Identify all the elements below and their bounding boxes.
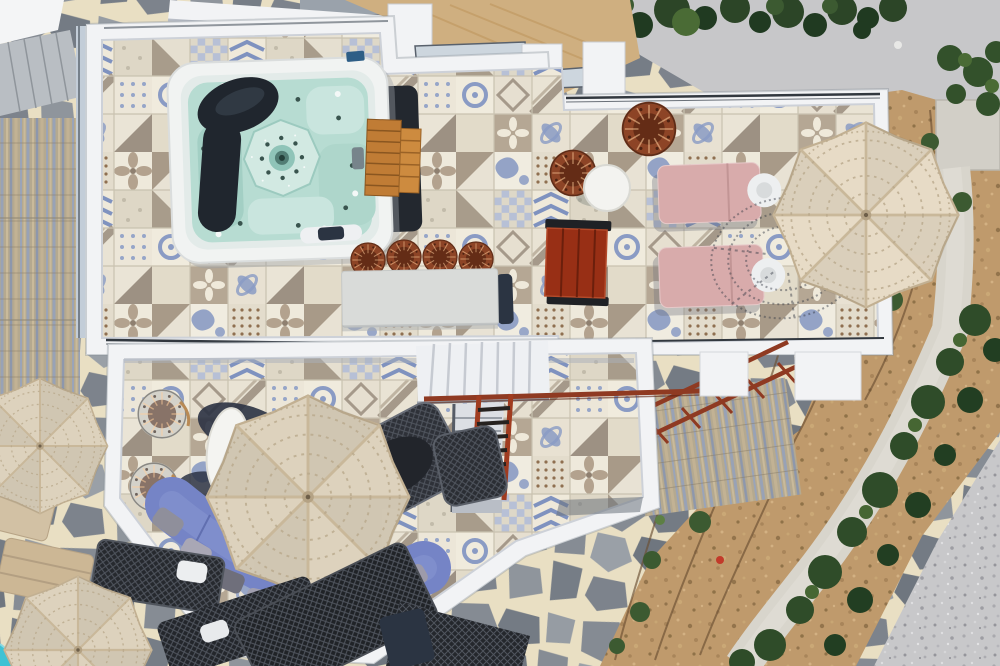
aerial-photo-stage	[0, 0, 1000, 666]
bench-cushion	[318, 226, 345, 241]
daybed-canopy	[431, 424, 509, 508]
control-panel	[352, 147, 365, 169]
wooden-step	[365, 119, 422, 197]
bar-table	[543, 219, 612, 306]
blue-accessory	[346, 51, 365, 63]
red-flower	[716, 556, 724, 564]
wall-cast-shadow	[124, 358, 634, 363]
villa-aerial-photo	[0, 0, 1000, 666]
white-stone	[894, 41, 902, 49]
round-wicker-chair	[137, 389, 186, 438]
wicker-armchair	[622, 102, 677, 157]
crochet-parasol-top-right	[773, 122, 958, 307]
dining-set	[342, 239, 514, 331]
round-table	[584, 165, 630, 211]
dining-table	[342, 269, 499, 328]
sun-lounger	[657, 162, 761, 224]
